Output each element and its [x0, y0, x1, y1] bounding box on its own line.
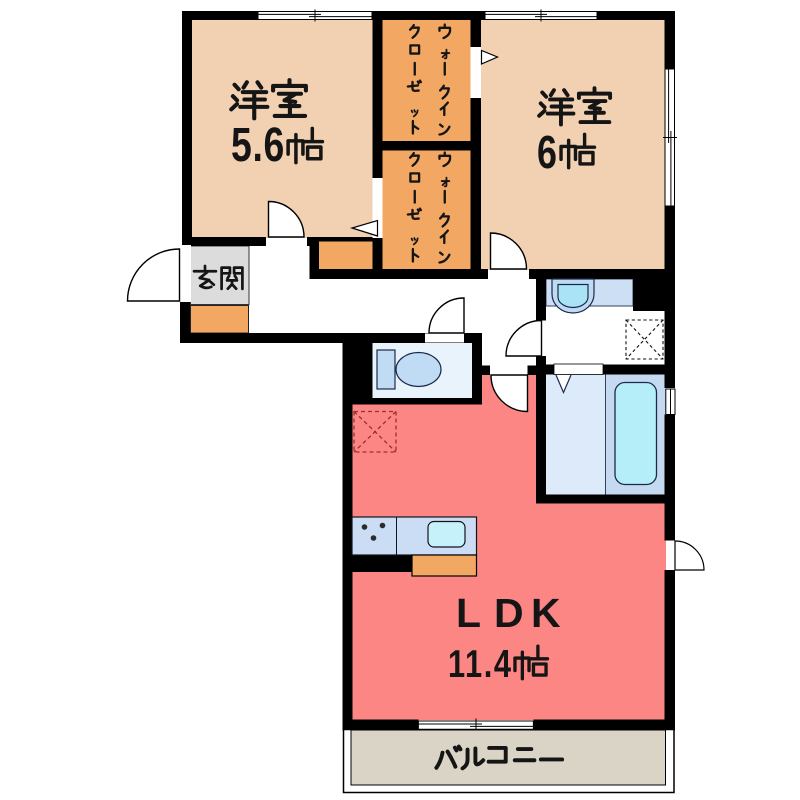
svg-text:L: L: [456, 590, 481, 636]
svg-text:6: 6: [537, 127, 557, 178]
svg-text:11.4: 11.4: [448, 643, 513, 686]
svg-text:K: K: [531, 590, 561, 636]
svg-text:5.6: 5.6: [231, 119, 285, 173]
svg-text:D: D: [494, 590, 524, 636]
